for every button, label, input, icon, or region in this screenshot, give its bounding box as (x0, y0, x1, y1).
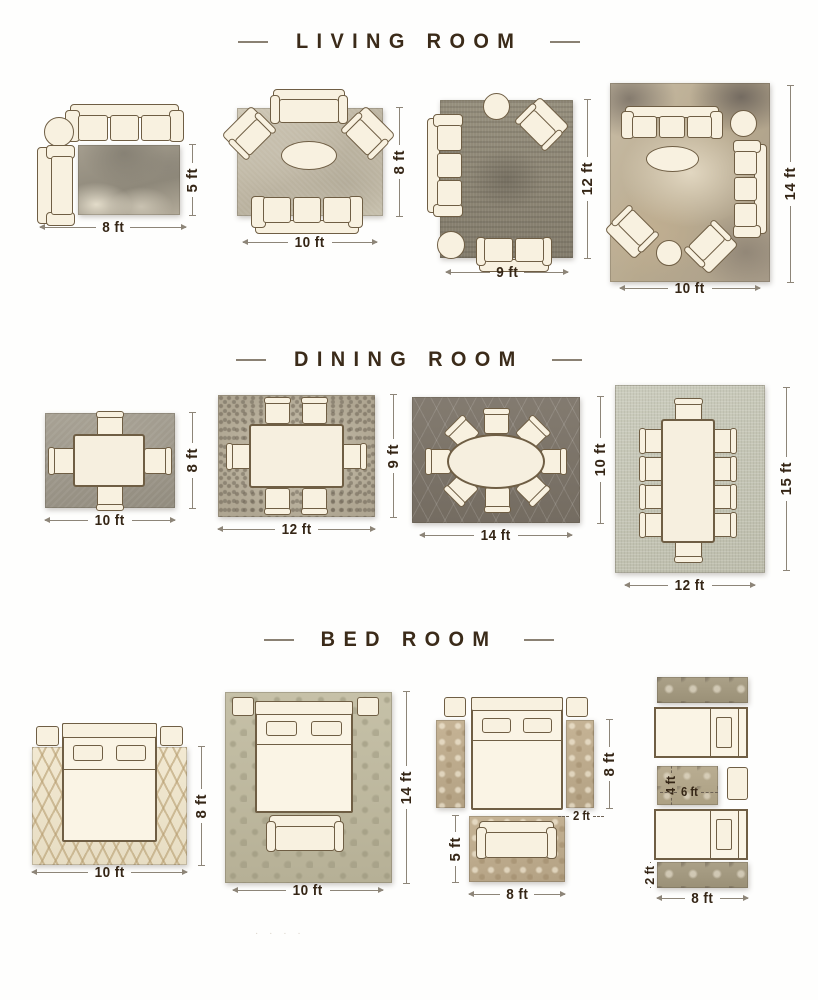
rug-size-guide: LIVING ROOM 8 ft 5 ft (0, 0, 818, 1000)
rug-width-dimension: 14 ft (420, 527, 572, 543)
side-table-icon (483, 93, 510, 120)
dimension-label: 8 ft (691, 890, 713, 907)
sofa-icon (251, 195, 363, 234)
rug-height-dimension: 15 ft (775, 388, 797, 570)
title-dash-right (524, 639, 554, 641)
dim-line (600, 397, 601, 438)
dim-line (790, 86, 791, 162)
rug-width-dimension: 10 ft (45, 512, 175, 528)
dim-line (518, 535, 572, 536)
rug-height-dimension: 9 ft (382, 395, 404, 517)
dim-line (600, 482, 601, 523)
armchair-icon (37, 147, 75, 224)
dim-line (40, 227, 96, 228)
rug-width-dimension: 8 ft (40, 219, 186, 235)
rug-width-dimension: 12 ft (625, 577, 755, 593)
dim-line (318, 529, 375, 530)
dimension-label: 14 ft (782, 167, 799, 200)
rug-height-dimension: 8 ft (181, 413, 203, 508)
dim-line (192, 145, 193, 163)
dim-line (609, 720, 610, 747)
mid-rug-width-dimension: 6 ft (660, 784, 718, 800)
bench-icon (266, 815, 344, 853)
rug-width-dimension: 10 ft (243, 234, 377, 250)
dim-line (671, 766, 672, 773)
sofa-icon (621, 106, 723, 140)
dim-line (406, 692, 407, 766)
rug-width-dimension: 10 ft (233, 882, 383, 898)
nightstand-icon (566, 697, 588, 717)
dim-line (393, 395, 394, 439)
dining-chair-icon (302, 488, 327, 511)
dim-line (243, 242, 288, 243)
loveseat-icon (270, 89, 348, 125)
title-dash-right (552, 359, 582, 361)
dimension-label: 8 ft (601, 752, 618, 777)
dim-line (524, 272, 568, 273)
dimension-label: 5 ft (447, 837, 464, 862)
dim-line (534, 894, 565, 895)
dim-line (786, 388, 787, 457)
dim-line (446, 272, 490, 273)
sofa-icon (65, 104, 184, 143)
nightstand-icon (36, 726, 59, 746)
dim-line (712, 288, 760, 289)
dim-line (786, 501, 787, 570)
dimension-label: 15 ft (778, 462, 795, 495)
side-table-icon (730, 110, 757, 137)
dining-chair-icon (265, 401, 290, 424)
dim-line (131, 872, 187, 873)
bench-icon (476, 821, 557, 860)
dim-line (45, 520, 88, 521)
dimension-label: 8 ft (391, 150, 408, 175)
dimension-label: 12 ft (281, 521, 311, 538)
dimension-label: 12 ft (579, 162, 596, 195)
dining-chair-icon (265, 488, 290, 511)
dim-line (587, 100, 588, 157)
foot-rug-width-dimension: 8 ft (469, 886, 565, 902)
dim-line (455, 816, 456, 832)
dim-line (650, 862, 651, 863)
dimension-label: 14 ft (398, 771, 415, 804)
rug-8x5 (78, 145, 180, 215)
dim-line (201, 823, 202, 865)
dim-line (192, 413, 193, 443)
rug-width-dimension: 10 ft (620, 280, 760, 296)
dim-line (399, 108, 400, 145)
dining-chair-icon (485, 487, 510, 509)
nightstand-icon (727, 767, 748, 800)
rug-height-dimension: 10 ft (589, 397, 611, 523)
dimension-label: 10 ft (675, 280, 705, 297)
dining-chair-icon (144, 448, 168, 474)
title-dash-left (238, 41, 268, 43)
runner-width-dimension: 2 ft (558, 808, 604, 824)
dimension-label: 14 ft (481, 527, 511, 544)
dim-line (192, 478, 193, 508)
runner-rug-left (436, 720, 465, 808)
dim-line (132, 520, 175, 521)
dimension-label: 10 ft (293, 882, 323, 899)
dim-line (399, 179, 400, 216)
bed-icon (471, 697, 563, 810)
dim-line (130, 227, 186, 228)
section-heading: LIVING ROOM (296, 30, 522, 54)
title-dash-left (264, 639, 294, 641)
section-title-bed-room: BED ROOM (0, 628, 818, 652)
dimension-label: 9 ft (385, 444, 402, 469)
dimension-label: 2 ft (573, 809, 590, 823)
dim-line (233, 890, 286, 891)
dining-chair-icon (484, 412, 509, 434)
rug-height-dimension: 5 ft (181, 145, 203, 215)
dimension-label: 2 ft (643, 866, 657, 885)
rug-width-dimension: 12 ft (218, 521, 375, 537)
rug-height-dimension: 8 ft (388, 108, 410, 216)
title-dash-right (550, 41, 580, 43)
dim-line (701, 792, 718, 793)
dimension-label: 8 ft (102, 219, 124, 236)
watermark-dots: · · · · (255, 928, 305, 939)
oval-dining-table-icon (447, 434, 545, 489)
dimension-label: 5 ft (184, 168, 201, 193)
dimension-label: 8 ft (184, 448, 201, 473)
dim-line (455, 866, 456, 882)
dining-table-icon (73, 434, 145, 487)
dim-line (790, 206, 791, 282)
dimension-label: 10 ft (295, 234, 325, 251)
rug-height-dimension: 12 ft (576, 100, 598, 258)
dim-line (712, 585, 755, 586)
dim-line (420, 535, 474, 536)
foot-rug-height-dimension: 5 ft (444, 816, 466, 882)
nightstand-icon (357, 697, 379, 716)
dimension-label: 9 ft (496, 264, 518, 281)
runner-rug-bottom (657, 862, 748, 888)
dim-line (201, 747, 202, 789)
runner-width-dimension: 8 ft (657, 890, 748, 906)
dining-chair-icon (302, 401, 327, 424)
runner-height-dimension: 2 ft (639, 862, 661, 888)
dim-line (720, 898, 748, 899)
dim-line (332, 242, 377, 243)
side-table-icon (656, 240, 682, 266)
rug-width-dimension: 10 ft (32, 864, 187, 880)
dimension-label: 8 ft (193, 794, 210, 819)
sofa-icon (732, 140, 767, 238)
dim-line (192, 197, 193, 215)
bed-icon (255, 701, 353, 813)
dimension-label: 12 ft (675, 577, 705, 594)
section-title-dining-room: DINING ROOM (0, 348, 818, 372)
section-heading: DINING ROOM (294, 348, 524, 372)
dim-line (32, 872, 88, 873)
twin-bed-icon (654, 809, 748, 860)
dim-line (625, 585, 668, 586)
bed-icon (62, 723, 157, 842)
nightstand-icon (444, 697, 466, 717)
dim-line (406, 809, 407, 883)
dim-line (587, 201, 588, 258)
dim-line (650, 887, 651, 888)
dimension-label: 10 ft (95, 512, 125, 529)
runner-rug-top (657, 677, 748, 703)
rug-height-dimension: 14 ft (395, 692, 417, 883)
dining-table-icon (249, 424, 344, 488)
runner-rug-right (566, 720, 594, 808)
dim-line (330, 890, 383, 891)
dim-line (660, 792, 677, 793)
coffee-table-icon (281, 141, 337, 170)
dining-table-icon (661, 419, 715, 543)
nightstand-icon (160, 726, 183, 746)
side-table-icon (437, 231, 465, 259)
dimension-label: 6 ft (681, 785, 698, 799)
dim-line (609, 781, 610, 808)
dimension-label: 10 ft (94, 864, 124, 881)
nightstand-icon (232, 697, 254, 716)
dim-line (620, 288, 668, 289)
dim-line (393, 473, 394, 517)
dim-line (593, 816, 604, 817)
dim-line (469, 894, 500, 895)
twin-bed-icon (654, 707, 748, 758)
side-table-icon (44, 117, 74, 147)
sofa-icon (427, 114, 464, 217)
dim-line (558, 816, 569, 817)
dim-line (657, 898, 685, 899)
title-dash-left (236, 359, 266, 361)
coffee-table-icon (646, 146, 699, 172)
rug-height-dimension: 8 ft (190, 747, 212, 865)
runner-height-dimension: 8 ft (598, 720, 620, 808)
rug-height-dimension: 14 ft (779, 86, 801, 282)
dimension-label: 8 ft (506, 886, 528, 903)
dimension-label: 10 ft (592, 443, 609, 476)
section-heading: BED ROOM (321, 628, 498, 652)
section-title-living-room: LIVING ROOM (0, 30, 818, 54)
rug-width-dimension: 9 ft (446, 264, 568, 280)
dim-line (218, 529, 275, 530)
